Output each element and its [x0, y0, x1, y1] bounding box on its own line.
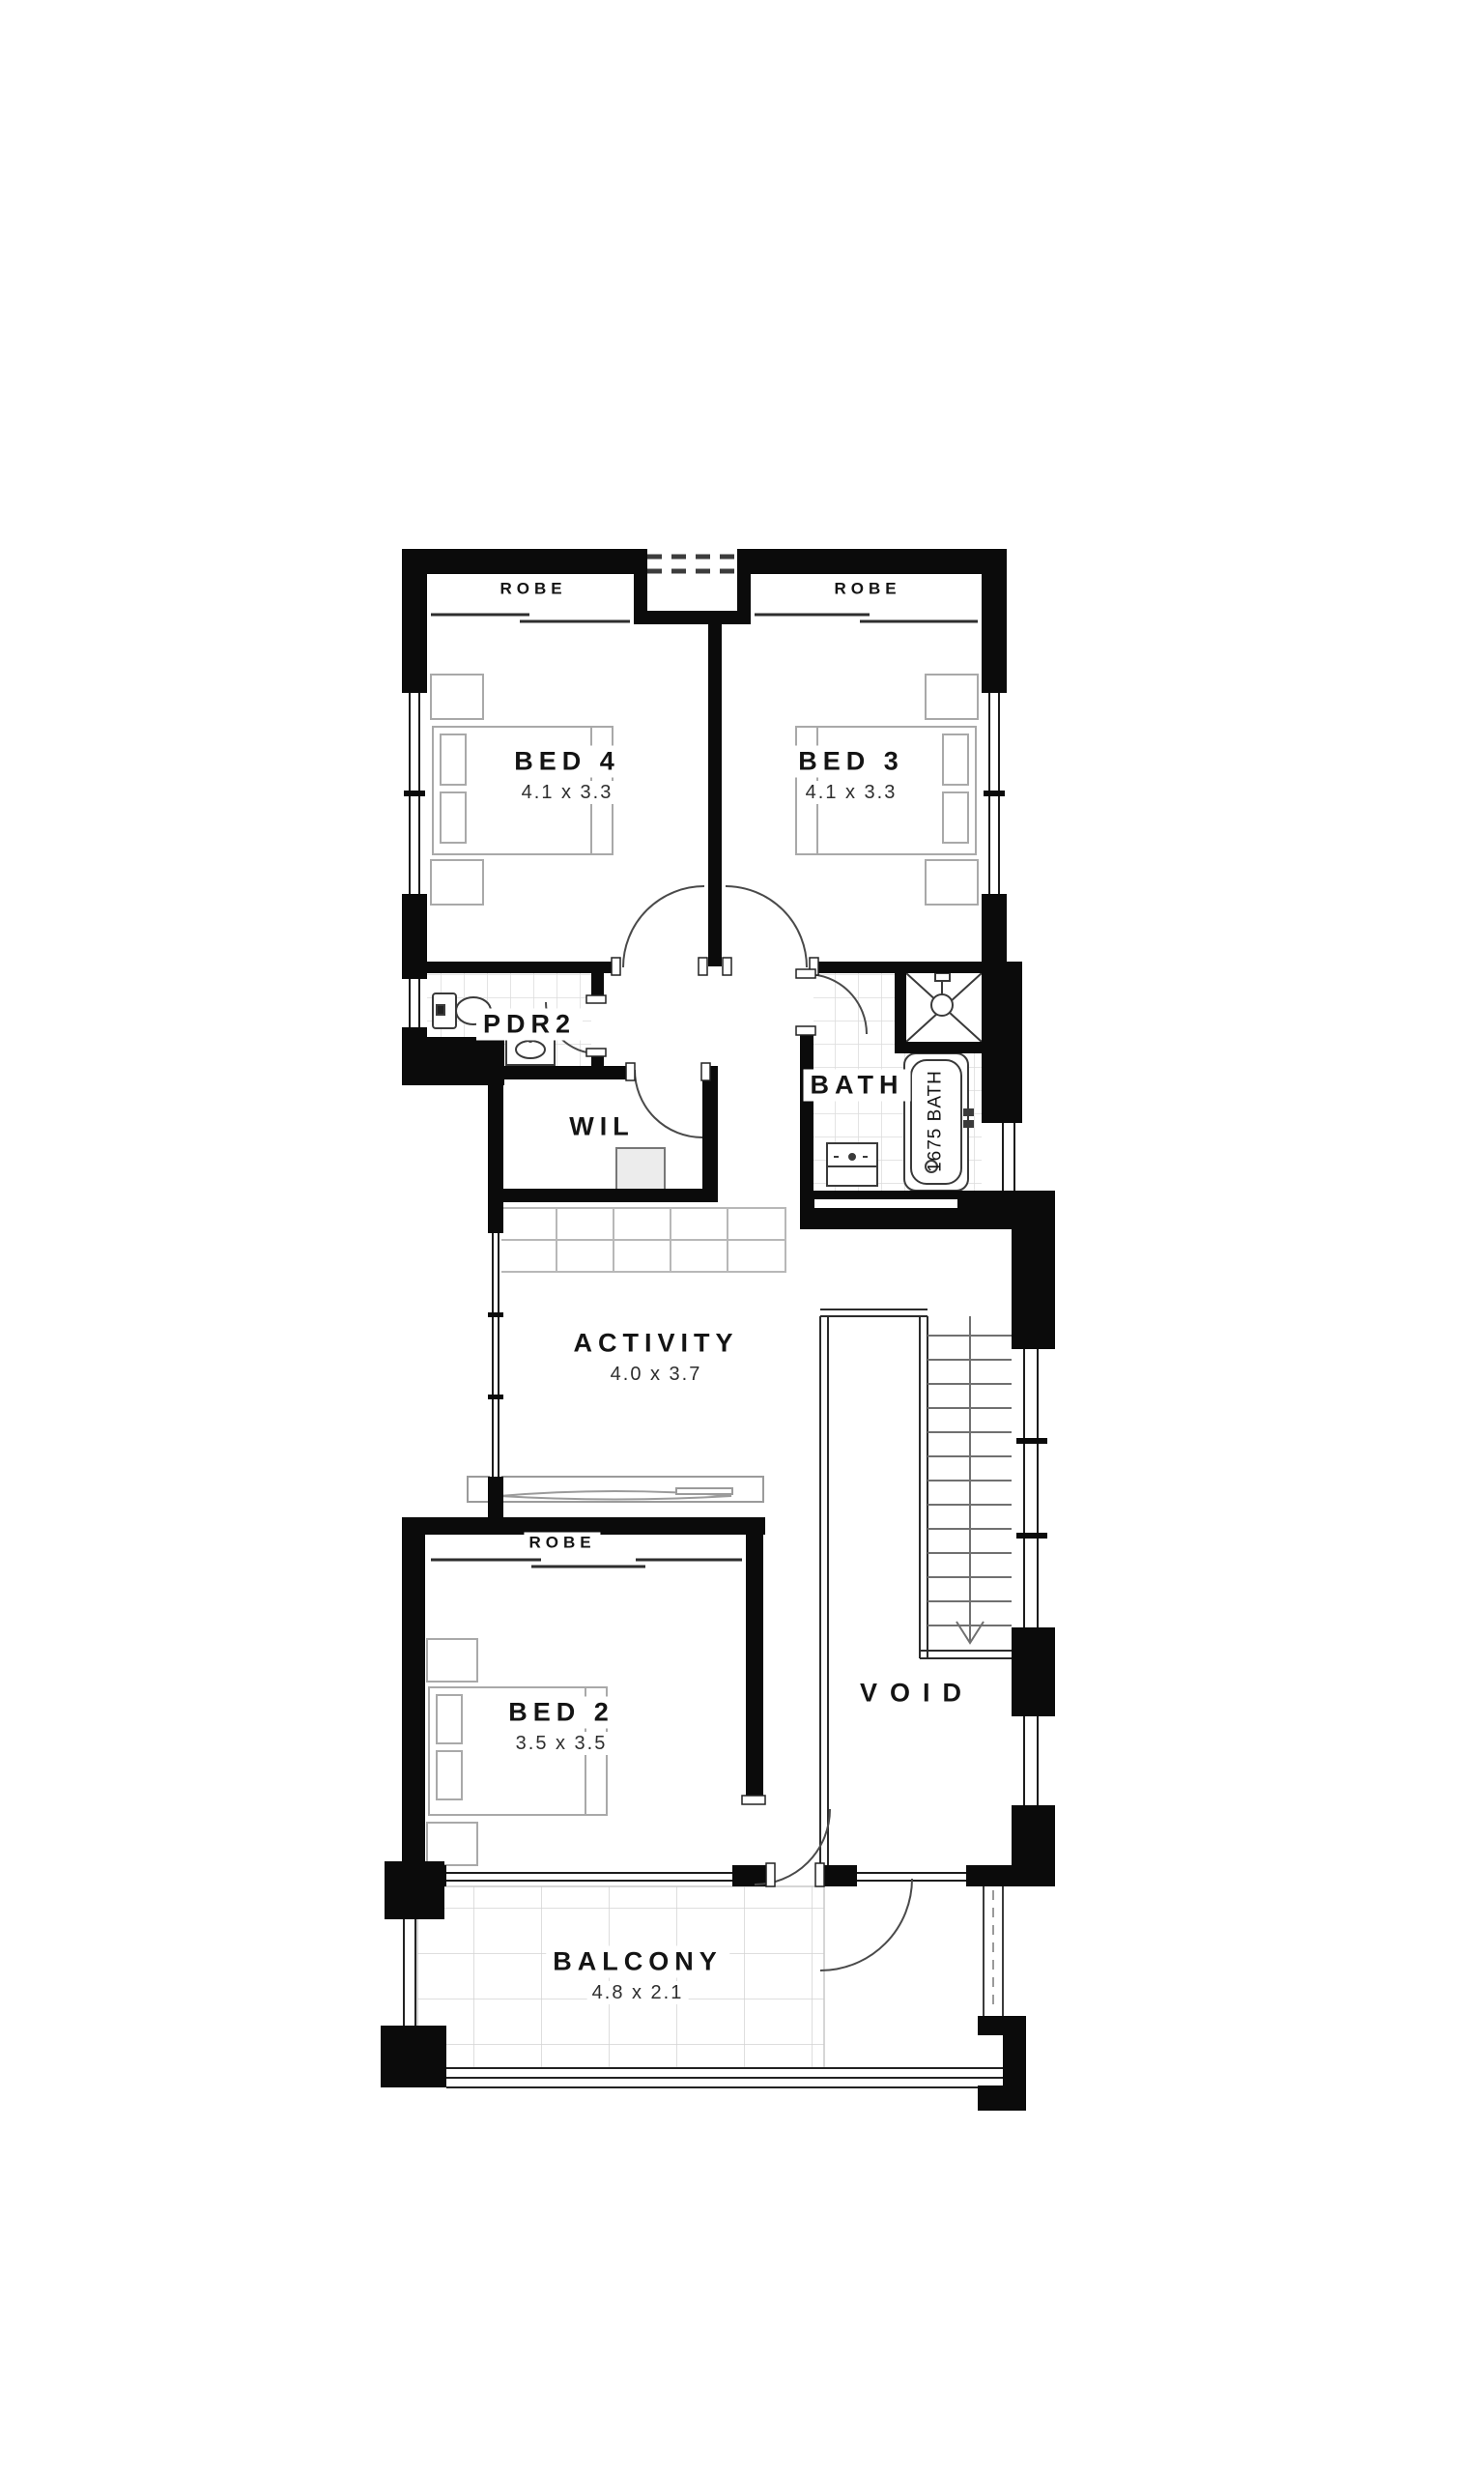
room-label-void: VOID: [853, 1678, 981, 1710]
bath-wall-niche: [814, 1199, 957, 1208]
floor-plan-drawing: [0, 0, 1484, 2474]
wil-shelf: [616, 1148, 665, 1191]
activity-sofa: [499, 1208, 785, 1272]
room-label-bed4: BED 4: [507, 746, 627, 778]
bed3-robe-doors: [755, 615, 978, 621]
room-dims-activity: 4.0 x 3.7: [606, 1363, 707, 1386]
bath-vanity: [827, 1143, 877, 1186]
room-label-wil: WIL: [562, 1111, 641, 1143]
bed3-door: [726, 886, 807, 967]
room-label-pdr2: PDR2: [476, 1009, 583, 1041]
room-dims-bed3: 4.1 x 3.3: [801, 781, 902, 804]
room-label-bath: BATH: [804, 1070, 911, 1102]
room-label-bed2: BED 2: [501, 1697, 621, 1729]
bathtub-size-label: 1675 BATH: [927, 1070, 945, 1172]
downpipe-chase: [984, 1886, 1003, 2016]
stairs: [927, 1316, 1012, 1643]
room-label-balcony: BALCONY: [546, 1946, 729, 1978]
robe-label-bed2: ROBE: [524, 1533, 600, 1553]
room-dims-balcony: 4.8 x 2.1: [587, 1981, 689, 2004]
bed4-door: [623, 886, 704, 967]
wil-door: [635, 1070, 702, 1137]
robe-label-bed3: ROBE: [829, 579, 905, 599]
bulkhead-dashes: [647, 557, 737, 571]
room-label-activity: ACTIVITY: [566, 1328, 745, 1360]
floor-plan: ROBE ROBE BED 4 4.1 x 3.3 BED 3 4.1 x 3.…: [0, 0, 1484, 2474]
balcony-door: [820, 1879, 912, 1971]
room-dims-bed4: 4.1 x 3.3: [517, 781, 618, 804]
room-label-bed3: BED 3: [791, 746, 911, 778]
room-dims-bed2: 3.5 x 3.5: [511, 1732, 613, 1755]
shower: [906, 973, 982, 1042]
robe-label-bed4: ROBE: [495, 579, 571, 599]
bed4-robe-doors: [431, 615, 630, 621]
tv-unit: [468, 1477, 763, 1502]
bed2-robe-doors: [431, 1560, 742, 1567]
void-boundary: [820, 1309, 1012, 1865]
